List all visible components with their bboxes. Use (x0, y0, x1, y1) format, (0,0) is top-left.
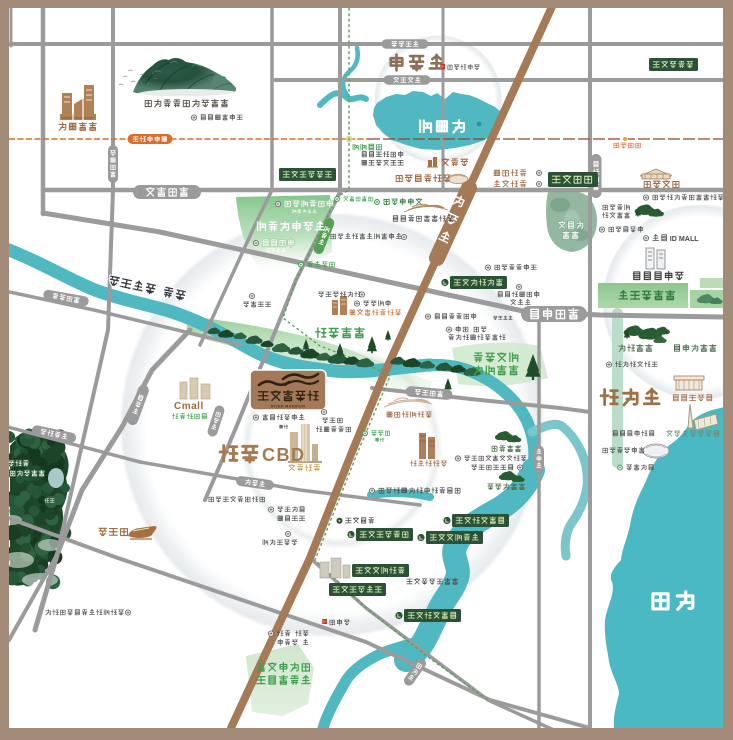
svg-text:RIVER MANSION: RIVER MANSION (271, 405, 305, 409)
svg-text:ID MALL: ID MALL (670, 235, 699, 243)
svg-text:Cmall: Cmall (174, 401, 204, 412)
svg-text:CBD: CBD (262, 445, 306, 465)
